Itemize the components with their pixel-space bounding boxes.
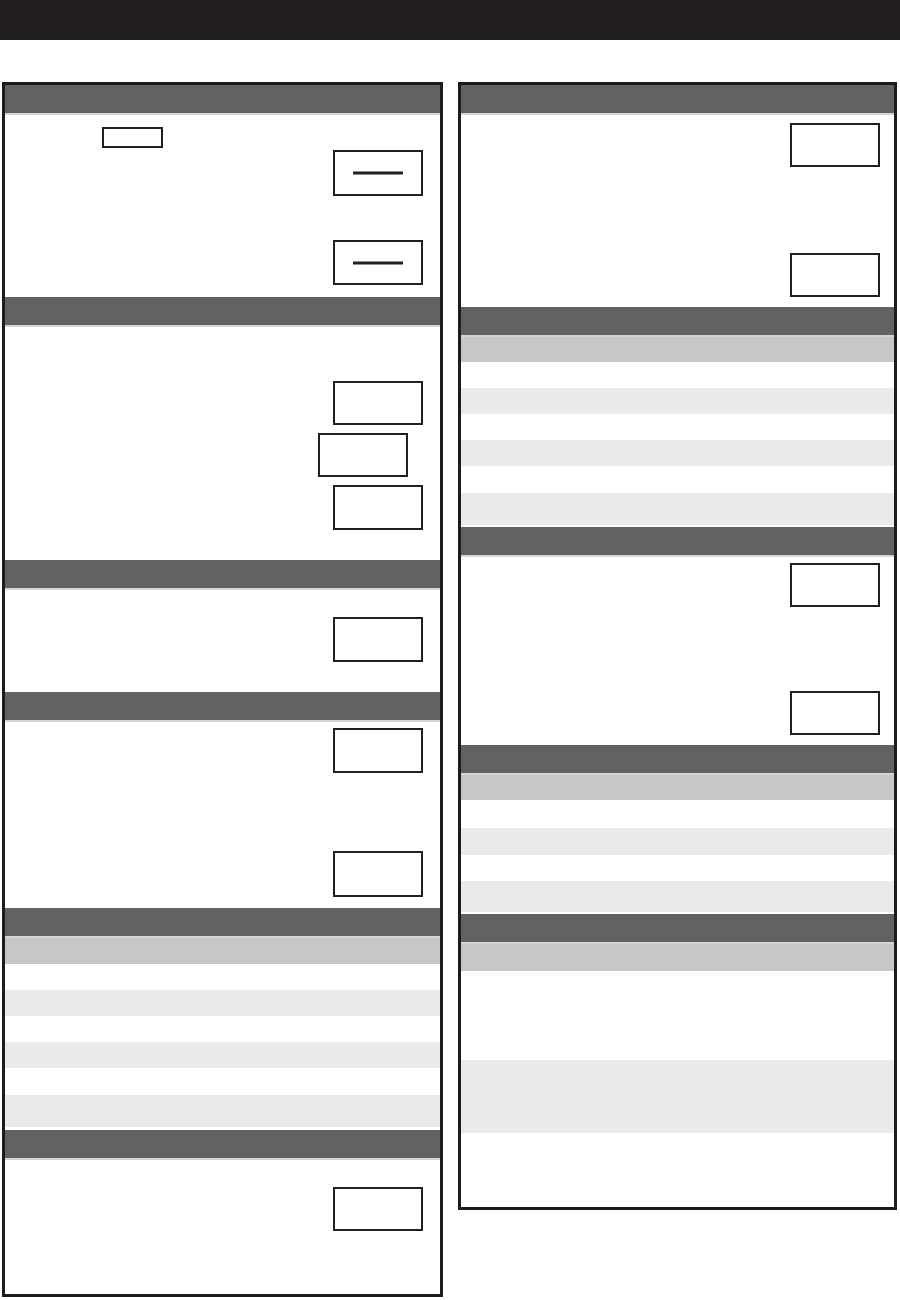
answer-box[interactable] (333, 851, 423, 897)
answer-box[interactable] (790, 253, 880, 297)
section-header-8 (461, 307, 894, 337)
section-header-7 (461, 85, 894, 115)
table-subheader-row (5, 938, 440, 964)
section-header-9 (461, 527, 894, 557)
table-row (461, 1060, 894, 1133)
table-row (461, 466, 894, 493)
table-row (5, 1068, 440, 1095)
top-banner (0, 0, 900, 40)
table-row (5, 990, 440, 1016)
name-box[interactable] (102, 127, 163, 148)
answer-box[interactable] (333, 1187, 423, 1231)
answer-box[interactable] (333, 150, 423, 196)
table-row (461, 971, 894, 1060)
answer-box[interactable] (333, 728, 423, 773)
answer-box[interactable] (790, 691, 880, 735)
answer-box[interactable] (790, 123, 880, 167)
left-panel (2, 82, 443, 1297)
section-3-content (5, 590, 440, 692)
table-row (461, 440, 894, 466)
table-row (461, 828, 894, 855)
table-row (461, 800, 894, 828)
table-row (461, 855, 894, 881)
answer-box[interactable] (333, 240, 423, 285)
right-panel (458, 82, 897, 1210)
table-row (461, 1133, 894, 1207)
section-header-5 (5, 908, 440, 938)
table-row (461, 493, 894, 525)
table-row (461, 362, 894, 388)
section-header-6 (5, 1130, 440, 1160)
table-row (461, 414, 894, 440)
table-row (5, 1042, 440, 1068)
answer-box[interactable] (333, 381, 423, 425)
table-row (5, 1095, 440, 1127)
section-header-3 (5, 560, 440, 590)
section-header-11 (461, 914, 894, 944)
table-subheader-row (461, 337, 894, 362)
section-7-content (461, 115, 894, 307)
section-header-10 (461, 745, 894, 775)
answer-box[interactable] (333, 617, 423, 662)
section-header-1 (5, 85, 440, 115)
answer-box[interactable] (790, 563, 880, 607)
answer-box[interactable] (333, 485, 423, 530)
table-row (461, 388, 894, 414)
table-row (5, 964, 440, 990)
section-header-2 (5, 297, 440, 327)
section-6-content (5, 1160, 440, 1294)
section-header-4 (5, 692, 440, 722)
worksheet-page (0, 0, 900, 1300)
table-subheader-row (461, 944, 894, 971)
blank-line (353, 261, 403, 264)
answer-box[interactable] (318, 433, 408, 477)
section-1-content (5, 115, 440, 297)
table-row (461, 881, 894, 912)
section-4-content (5, 722, 440, 908)
section-9-content (461, 557, 894, 745)
section-2-content (5, 327, 440, 560)
table-subheader-row (461, 775, 894, 800)
table-row (5, 1016, 440, 1042)
blank-line (353, 172, 403, 175)
